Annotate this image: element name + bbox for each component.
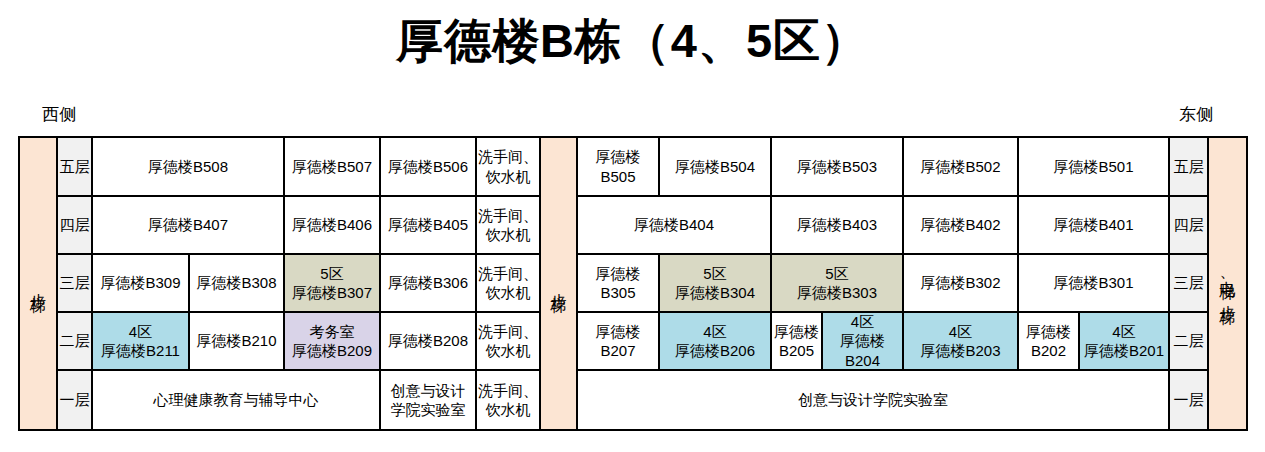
room-b505: 厚德楼B505 bbox=[578, 138, 660, 197]
room-b306: 厚德楼B306 bbox=[381, 255, 477, 313]
floor-label-right-1f: 一层 bbox=[1170, 371, 1209, 431]
room-b305: 厚德楼B305 bbox=[578, 255, 660, 313]
counseling-center-cell: 心理健康教育与辅导中心 bbox=[93, 371, 381, 431]
washroom-cell-2f: 洗手间、 饮水机 bbox=[477, 313, 541, 371]
room-b302: 厚德楼B302 bbox=[904, 255, 1019, 313]
washroom-cell-3f: 洗手间、 饮水机 bbox=[477, 255, 541, 313]
washroom-cell-4f: 洗手间、 饮水机 bbox=[477, 197, 541, 255]
room-b309: 厚德楼B309 bbox=[93, 255, 190, 313]
room-b407: 厚德楼B407 bbox=[93, 197, 285, 255]
washroom-cell-5f: 洗手间、 饮水机 bbox=[477, 138, 541, 197]
room-b503: 厚德楼B503 bbox=[772, 138, 904, 197]
room-b201-zone4: 4区 厚德楼B201 bbox=[1080, 313, 1170, 371]
room-b405: 厚德楼B405 bbox=[381, 197, 477, 255]
design-lab-right-cell: 创意与设计学院实验室 bbox=[578, 371, 1170, 431]
elevator-stairs-cell: 电梯、步梯 bbox=[1209, 138, 1248, 431]
room-b202: 厚德楼 B202 bbox=[1019, 313, 1080, 371]
room-b304-zone5: 5区 厚德楼B304 bbox=[660, 255, 772, 313]
floor-label-left-2f: 二层 bbox=[58, 313, 93, 371]
room-b204-zone4: 4区 厚德楼B204 bbox=[823, 313, 904, 371]
room-b210: 厚德楼B210 bbox=[190, 313, 285, 371]
room-b501: 厚德楼B501 bbox=[1019, 138, 1170, 197]
room-b308: 厚德楼B308 bbox=[190, 255, 285, 313]
room-b403: 厚德楼B403 bbox=[772, 197, 904, 255]
room-b307-zone5: 5区 厚德楼B307 bbox=[285, 255, 381, 313]
room-b506: 厚德楼B506 bbox=[381, 138, 477, 197]
washroom-cell-1f: 洗手间、 饮水机 bbox=[477, 371, 541, 431]
design-lab-left-cell: 创意与设计 学院实验室 bbox=[381, 371, 477, 431]
room-b209-exam-office: 考务室 厚德楼B209 bbox=[285, 313, 381, 371]
room-b206-zone4: 4区 厚德楼B206 bbox=[660, 313, 772, 371]
room-b303-zone5: 5区 厚德楼B303 bbox=[772, 255, 904, 313]
room-b203-zone4: 4区 厚德楼B203 bbox=[904, 313, 1019, 371]
floor-label-right-5f: 五层 bbox=[1170, 138, 1209, 197]
floor-label-left-5f: 五层 bbox=[58, 138, 93, 197]
room-b205: 厚德楼 B205 bbox=[772, 313, 823, 371]
floor-label-right-3f: 三层 bbox=[1170, 255, 1209, 313]
room-b401: 厚德楼B401 bbox=[1019, 197, 1170, 255]
room-b504: 厚德楼B504 bbox=[660, 138, 772, 197]
floor-plan-page: 厚德楼B栋（4、5区） 西侧 东侧 步梯 步梯 电梯、步梯 五层 厚德楼B508… bbox=[0, 0, 1265, 452]
room-b211-zone4: 4区 厚德楼B211 bbox=[93, 313, 190, 371]
page-title: 厚德楼B栋（4、5区） bbox=[0, 10, 1265, 73]
floor-label-left-3f: 三层 bbox=[58, 255, 93, 313]
floor-label-right-2f: 二层 bbox=[1170, 313, 1209, 371]
room-b406: 厚德楼B406 bbox=[285, 197, 381, 255]
floor-plan-grid: 步梯 步梯 电梯、步梯 五层 厚德楼B508 厚德楼B507 厚德楼B506 洗… bbox=[18, 136, 1248, 431]
room-b301: 厚德楼B301 bbox=[1019, 255, 1170, 313]
room-b508: 厚德楼B508 bbox=[93, 138, 285, 197]
room-b404: 厚德楼B404 bbox=[578, 197, 772, 255]
room-b208: 厚德楼B208 bbox=[381, 313, 477, 371]
floor-label-left-4f: 四层 bbox=[58, 197, 93, 255]
stairs-left-cell: 步梯 bbox=[20, 138, 58, 431]
floor-label-left-1f: 一层 bbox=[58, 371, 93, 431]
room-b502: 厚德楼B502 bbox=[904, 138, 1019, 197]
east-side-label: 东侧 bbox=[1179, 105, 1213, 125]
room-b207: 厚德楼B207 bbox=[578, 313, 660, 371]
room-b507: 厚德楼B507 bbox=[285, 138, 381, 197]
floor-label-right-4f: 四层 bbox=[1170, 197, 1209, 255]
stairs-middle-cell: 步梯 bbox=[541, 138, 578, 431]
west-side-label: 西侧 bbox=[42, 105, 76, 125]
room-b402: 厚德楼B402 bbox=[904, 197, 1019, 255]
